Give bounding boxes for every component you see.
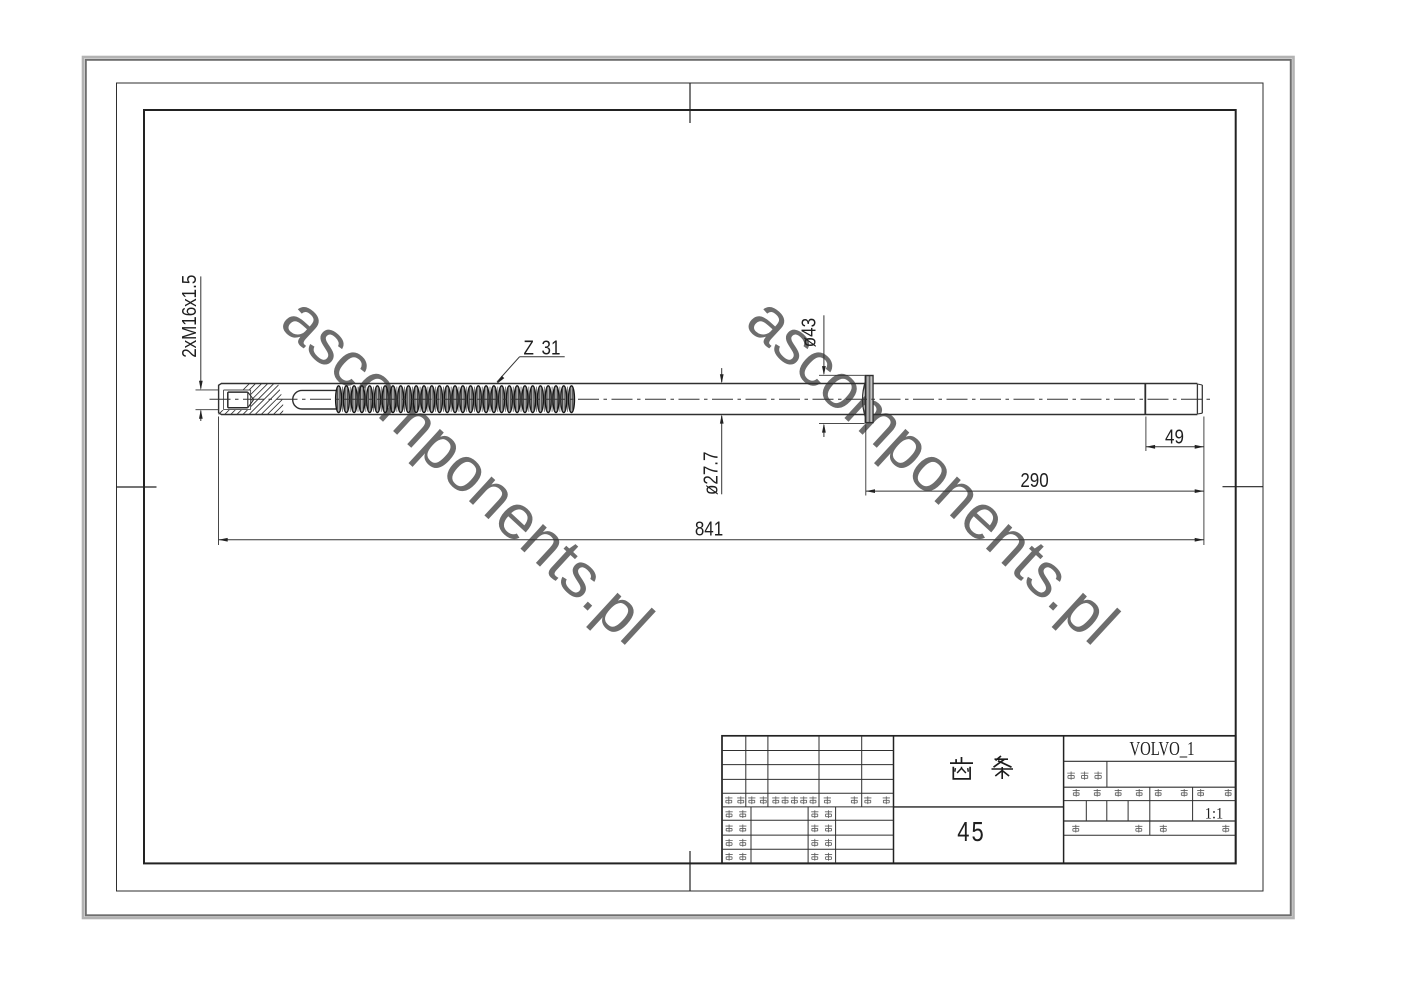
svg-text:841: 841 <box>695 517 723 540</box>
svg-text:49: 49 <box>1165 425 1184 448</box>
svg-text:Z: Z <box>524 336 534 359</box>
svg-text:31: 31 <box>542 336 561 359</box>
svg-text:ø43: ø43 <box>797 318 820 347</box>
svg-text:ø27.7: ø27.7 <box>699 452 722 495</box>
svg-text:290: 290 <box>1020 468 1048 491</box>
svg-text:2xM16x1.5: 2xM16x1.5 <box>178 275 201 358</box>
svg-text:45: 45 <box>957 817 985 848</box>
svg-text:VOLVO_1: VOLVO_1 <box>1129 736 1194 759</box>
svg-text:1:1: 1:1 <box>1205 805 1223 823</box>
